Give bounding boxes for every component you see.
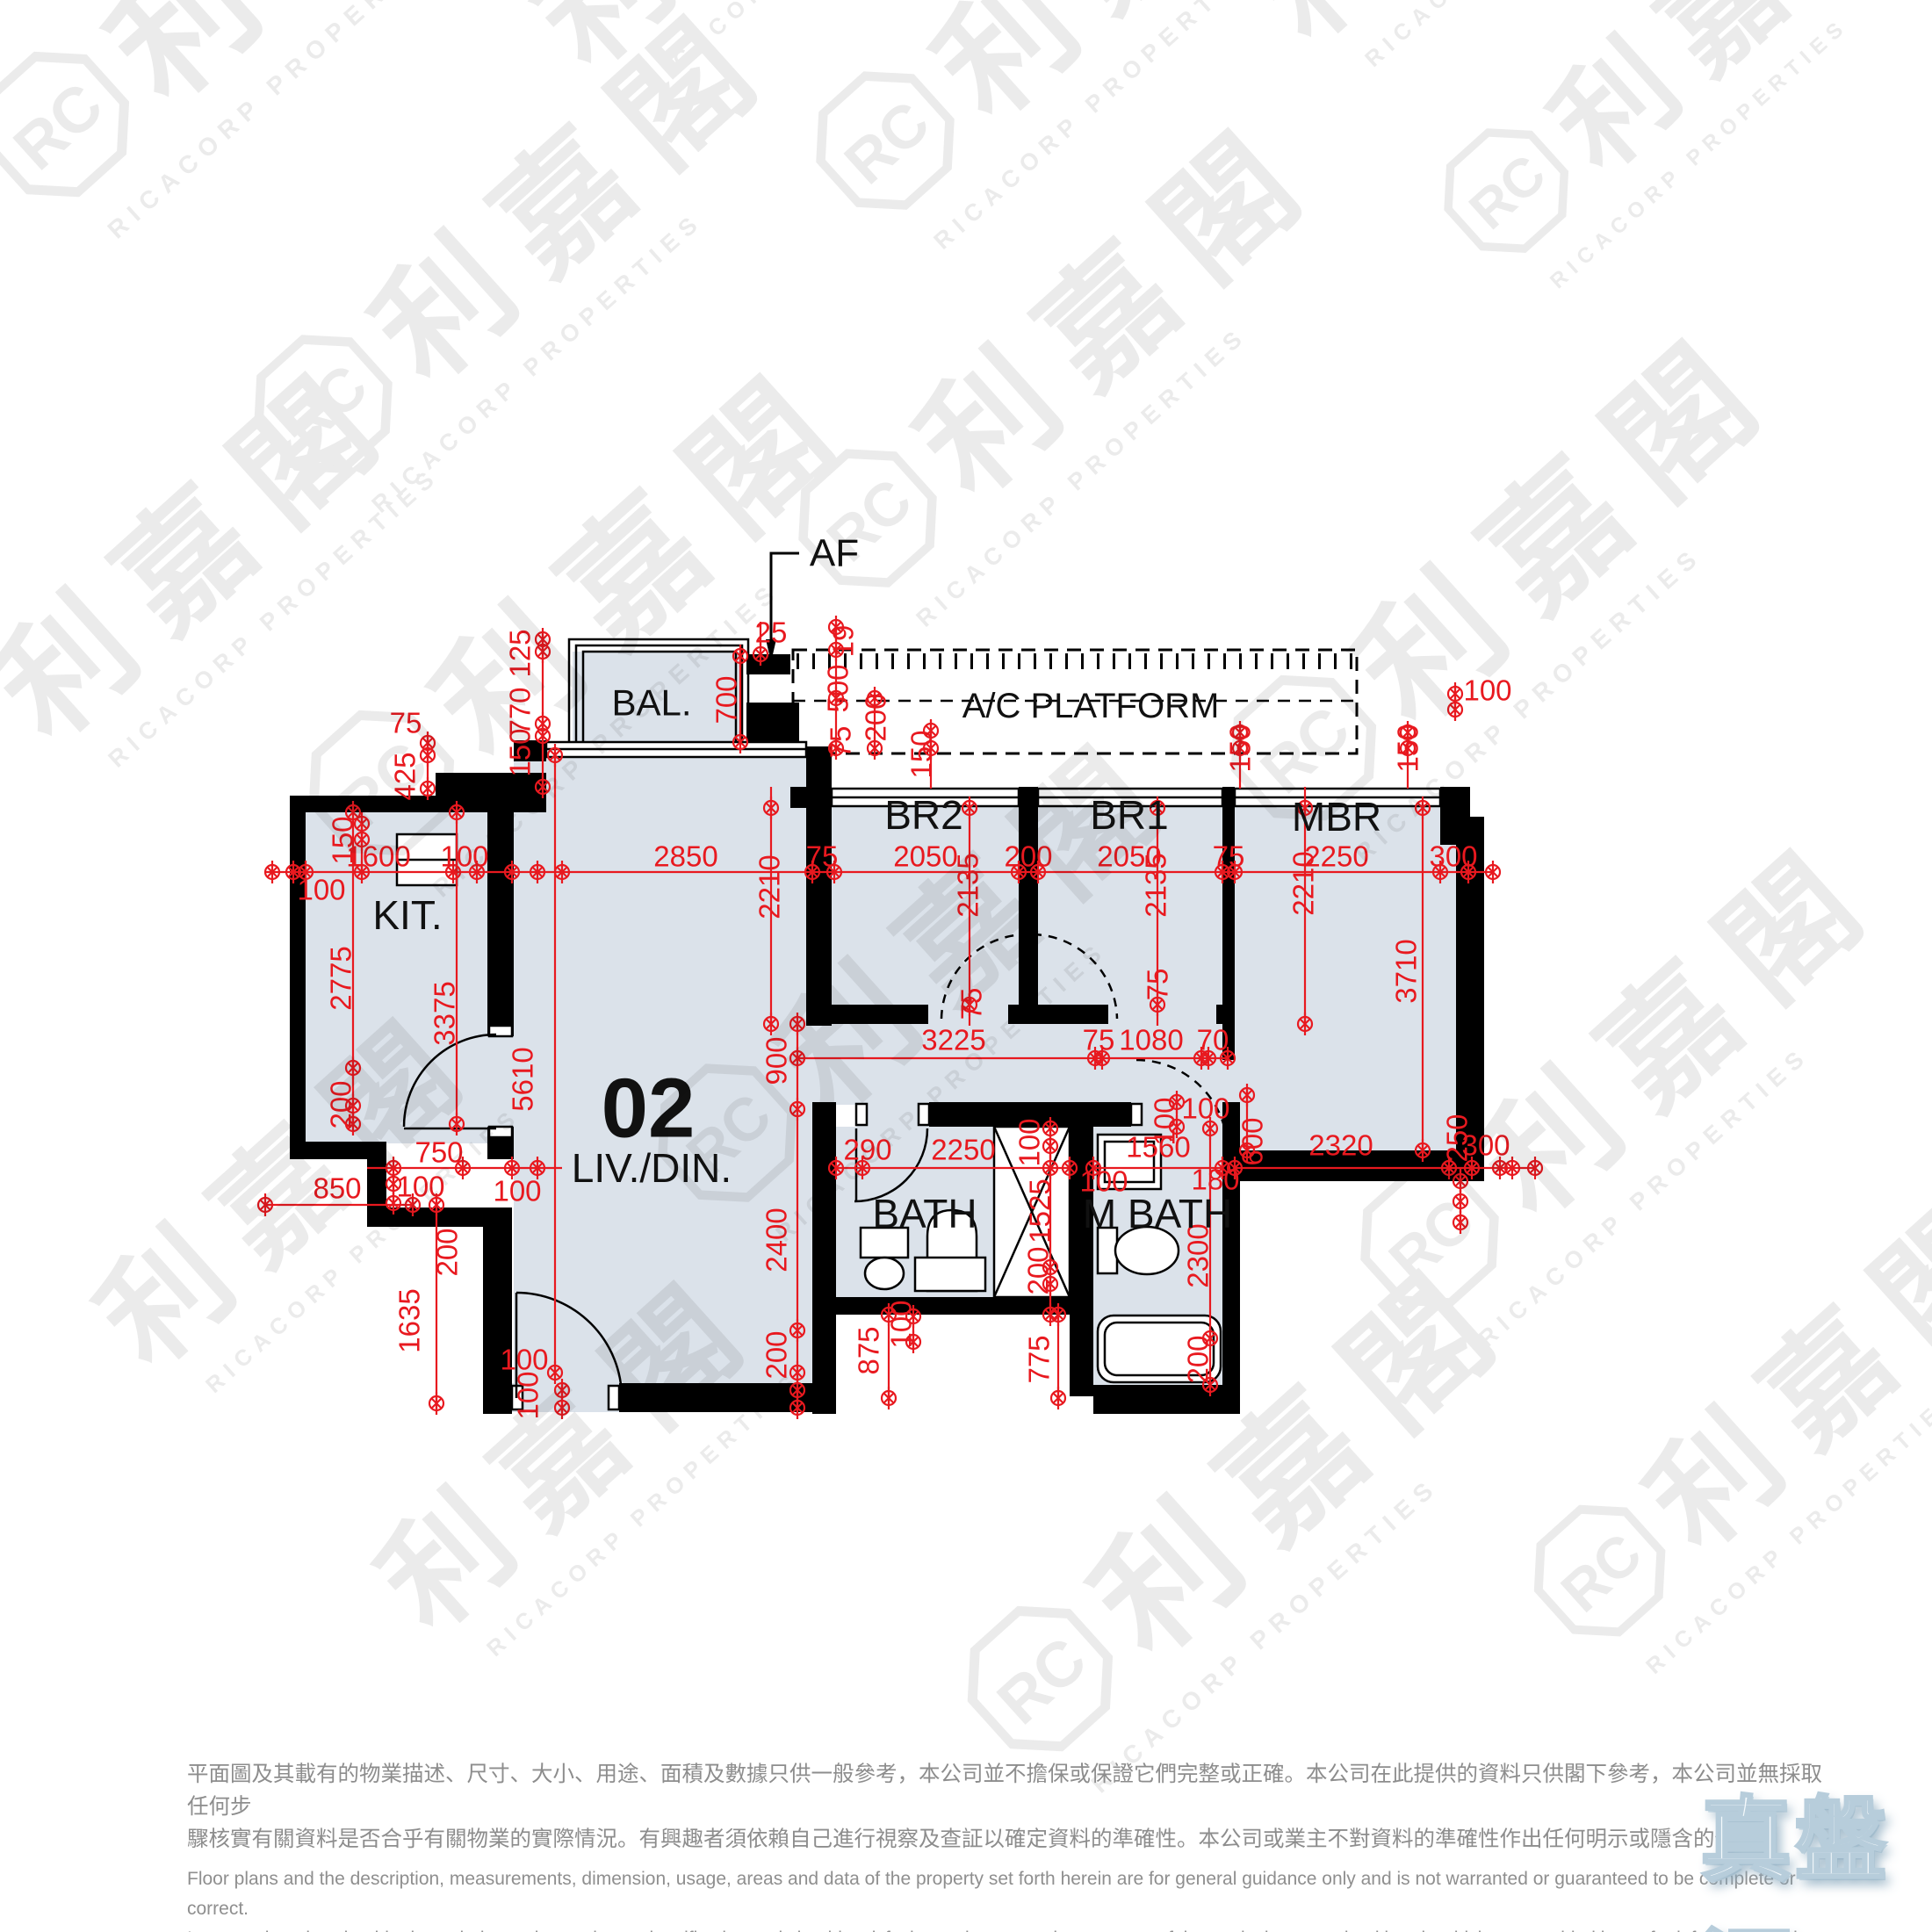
dimension-label: 2050 xyxy=(893,840,957,873)
dimension-label: 5610 xyxy=(507,1047,539,1111)
room-label-unit-number: 02 xyxy=(602,1062,696,1156)
room-label-af: AF xyxy=(810,532,859,575)
dimension-label: 100 xyxy=(500,1344,548,1376)
floor-plan: 1257701507542515010016001002850752050200… xyxy=(0,0,1932,1932)
dimension-label: 1080 xyxy=(1119,1024,1183,1056)
dimension-label: 2775 xyxy=(325,946,357,1010)
dimension-label: 750 xyxy=(415,1136,463,1169)
dimension-label: 3225 xyxy=(921,1024,985,1056)
room-label-bath: BATH xyxy=(872,1191,977,1236)
room-label-br2: BR2 xyxy=(884,792,962,838)
dimension-label: 200 xyxy=(860,693,892,741)
dimension-label: 75 xyxy=(806,840,839,873)
room-label-bal: BAL. xyxy=(611,682,691,724)
dimension-label: 200 xyxy=(1004,840,1052,873)
dimension-label: 2250 xyxy=(931,1134,995,1166)
room-label-kit: KIT. xyxy=(372,892,442,938)
dimension-label: 19 xyxy=(827,625,860,658)
dimension-label: 200 xyxy=(1182,1335,1215,1383)
disclaimer-chinese: 平面圖及其載有的物業描述、尺寸、大小、用途、面積及數據只供一般參考，本公司並不擔… xyxy=(187,1758,1829,1856)
dimension-label: 150 xyxy=(1392,724,1424,772)
floorplan-page: RC利嘉閣RICACORP PROPERTIESRC利嘉閣RICACORP PR… xyxy=(0,0,1932,1932)
dimension-label: 75 xyxy=(1213,840,1245,873)
dimension-label: 300 xyxy=(1461,1129,1510,1162)
dimension-marker xyxy=(429,1392,443,1415)
dimension-label: 100 xyxy=(512,1371,544,1419)
dimension-label: 150 xyxy=(1224,724,1257,772)
room-label-br1: BR1 xyxy=(1090,792,1168,838)
dimension-label: 3710 xyxy=(1390,939,1423,1003)
dimension-marker xyxy=(1448,698,1462,721)
disclaimer-zh-line2: 驟核實有關資料是否合乎有關物業的實際情況。有興趣者須依賴自己進行視察及查証以確定… xyxy=(187,1823,1829,1856)
disclaimer-en-line2: Interested parties should rely on their … xyxy=(187,1924,1829,1932)
disclaimer-english: Floor plans and the description, measure… xyxy=(187,1864,1829,1932)
dimension-label: 900 xyxy=(761,1036,793,1085)
dimension-marker xyxy=(1453,1190,1467,1213)
dimension-label: 770 xyxy=(504,687,537,735)
dimension-label: 150 xyxy=(504,728,537,776)
dimension-label: 100 xyxy=(1463,674,1511,707)
dimension-label: 2400 xyxy=(761,1207,793,1272)
property-source-logo: 真盤源 xyxy=(1700,1765,1932,1932)
dimension-label: 700 xyxy=(710,675,743,724)
dimension-label: 2210 xyxy=(1287,851,1320,915)
dimension-label: 290 xyxy=(843,1134,891,1166)
dimension-label: 300 xyxy=(1429,840,1477,873)
dimension-marker xyxy=(1051,1387,1065,1409)
dimension-label: 200 xyxy=(431,1228,464,1276)
dimension-label: 1600 xyxy=(346,840,410,873)
dimension-label: 200 xyxy=(761,1330,793,1379)
dimension-label: 200 xyxy=(325,1080,357,1128)
dimension-label: 875 xyxy=(853,1326,885,1374)
dimension-marker xyxy=(1453,1211,1467,1234)
dimension-label: 150 xyxy=(905,730,938,778)
room-label-ac-platform: A/C PLATFORM xyxy=(962,687,1220,725)
dimension-label: 75 xyxy=(390,707,422,739)
dimension-label: 100 xyxy=(1013,1118,1046,1166)
dimension-label: 850 xyxy=(313,1172,361,1205)
dimension-label: 70 xyxy=(1197,1024,1229,1056)
dimension-label: 1525 xyxy=(1024,1179,1056,1243)
dimension-label: 100 xyxy=(440,840,488,873)
dimension-label: 100 xyxy=(885,1300,918,1348)
dimension-label: 100 xyxy=(297,874,345,906)
room-label-mbr: MBR xyxy=(1292,794,1381,840)
dimension-label: 2135 xyxy=(952,853,984,917)
dimension-label: 2850 xyxy=(653,840,717,873)
dimension-label: 600 xyxy=(1236,1117,1269,1165)
dimension-marker xyxy=(882,1387,896,1409)
dimension-label: 100 xyxy=(493,1175,541,1207)
dimension-label: 200 xyxy=(1022,1246,1055,1294)
dimension-label: 3375 xyxy=(429,981,461,1045)
dimension-label: 75 xyxy=(825,726,857,759)
dimension-label: 75 xyxy=(1083,1024,1115,1056)
dimension-label: 2135 xyxy=(1140,853,1172,917)
dimension-label: 425 xyxy=(389,752,422,800)
dimension-label: 25 xyxy=(755,616,788,649)
dimension-label: 2210 xyxy=(753,854,786,919)
dimension-label: 100 xyxy=(396,1171,444,1203)
dimension-label: 125 xyxy=(504,629,537,677)
dimension-label: 75 xyxy=(955,988,988,1020)
dimension-label: 775 xyxy=(1023,1335,1056,1383)
dimension-label: 100 xyxy=(1181,1092,1229,1125)
dimension-label: 75 xyxy=(1142,969,1174,1001)
disclaimer-en-line1: Floor plans and the description, measure… xyxy=(187,1864,1829,1924)
disclaimer: 平面圖及其載有的物業描述、尺寸、大小、用途、面積及數據只供一般參考，本公司並不擔… xyxy=(187,1758,1829,1932)
room-label-m-bath: M BATH xyxy=(1083,1191,1232,1236)
dimension-label: 100 xyxy=(1149,1097,1181,1145)
dimension-label: 500 xyxy=(822,664,854,712)
dimension-label: 1635 xyxy=(393,1288,426,1352)
room-label-liv-din: LIV./DIN. xyxy=(572,1145,732,1191)
dimension-label: 2320 xyxy=(1308,1129,1373,1162)
disclaimer-zh-line1: 平面圖及其載有的物業描述、尺寸、大小、用途、面積及數據只供一般參考，本公司並不擔… xyxy=(187,1758,1829,1823)
